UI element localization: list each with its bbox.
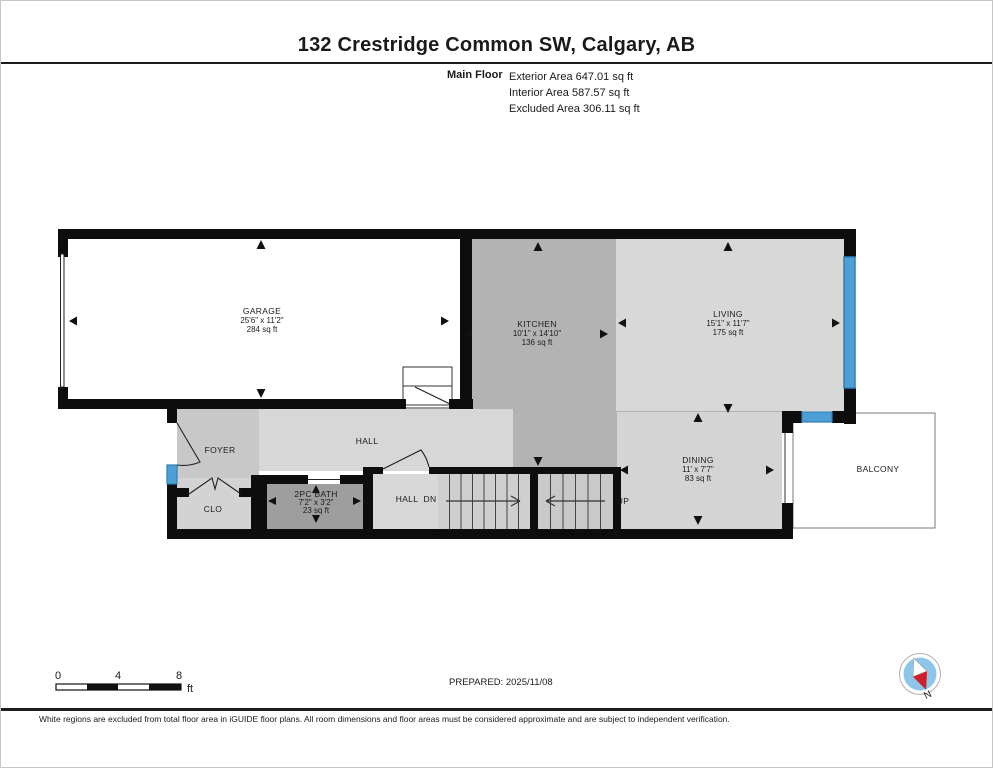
svg-text:10'1" x 14'10": 10'1" x 14'10" [513,329,561,338]
stairs-dn-label: DN [424,494,437,504]
svg-text:175 sq ft: 175 sq ft [713,328,744,337]
wall-balcony-lower [782,503,793,539]
svg-text:25'6" x 11'2": 25'6" x 11'2" [240,316,283,325]
foyer-label: FOYER [205,445,236,455]
wall-living-bottom-b [832,411,844,423]
wall-garage-kitchen [460,229,472,409]
window-foyer [167,465,177,484]
prepared-date: PREPARED: 2025/11/08 [449,677,553,688]
wall-garage-bottom-a [58,399,406,409]
scale-tick-8: 8 [176,670,182,682]
scale-unit: ft [187,683,193,695]
svg-text:136 sq ft: 136 sq ft [522,338,553,347]
svg-text:11' x 7'7": 11' x 7'7" [682,465,714,474]
window-living-bottom [802,412,832,422]
dining-label: DINING 11' x 7'7" 83 sq ft [682,455,714,483]
wall-bath-top-a [267,475,308,484]
staircase-up [538,474,613,529]
wall-closet-bath [251,475,267,539]
svg-text:284 sq ft: 284 sq ft [247,325,278,334]
svg-text:23 sq ft: 23 sq ft [303,506,330,515]
wall-top [58,229,856,239]
stairs-up-label: UP [617,496,629,506]
wall-stairs-top [429,467,617,474]
footer-divider [1,708,992,711]
balcony-label: BALCONY [857,464,900,474]
wall-foyer-left-upper [167,399,177,423]
svg-text:KITCHEN: KITCHEN [517,319,556,329]
wall-landing-stub [373,467,383,474]
window-living-right [844,257,855,388]
compass-icon: N [900,654,941,701]
wall-balcony-upper [782,411,793,433]
wall-bath-top-b [340,475,363,484]
wall-bifold-stub-right [239,488,251,497]
floorplan-page: 132 Crestridge Common SW, Calgary, AB Ma… [0,0,993,768]
svg-text:LIVING: LIVING [713,309,743,319]
hall-lower-label: HALL [396,494,418,504]
svg-text:15'1" x 11'7": 15'1" x 11'7" [706,319,749,328]
garage-label: GARAGE 25'6" x 11'2" 284 sq ft [240,306,283,334]
closet-label: CLO [204,504,222,514]
wall-stairs-middle [530,474,538,529]
hall-label: HALL [356,436,378,446]
staircase-down [438,474,530,529]
wall-bath-right [363,467,373,539]
scale-tick-4: 4 [115,670,121,682]
garage-steps [403,367,452,405]
wall-garage-left-upper [58,229,68,257]
wall-living-right-lower [844,388,856,424]
svg-text:83 sq ft: 83 sq ft [685,474,712,483]
garage-overhead-door [61,254,65,387]
disclaimer-text: White regions are excluded from total fl… [39,714,959,724]
svg-text:GARAGE: GARAGE [243,306,281,316]
floorplan-drawing: GARAGE 25'6" x 11'2" 284 sq ft KITCHEN 1… [1,1,993,768]
svg-text:DINING: DINING [682,455,714,465]
room-kitchen-lower [511,409,621,467]
wall-bifold-stub-left [177,488,189,497]
scale-bar: 0 4 8 ft [55,670,193,695]
scale-tick-0: 0 [55,670,61,682]
wall-living-right-upper [844,229,856,257]
